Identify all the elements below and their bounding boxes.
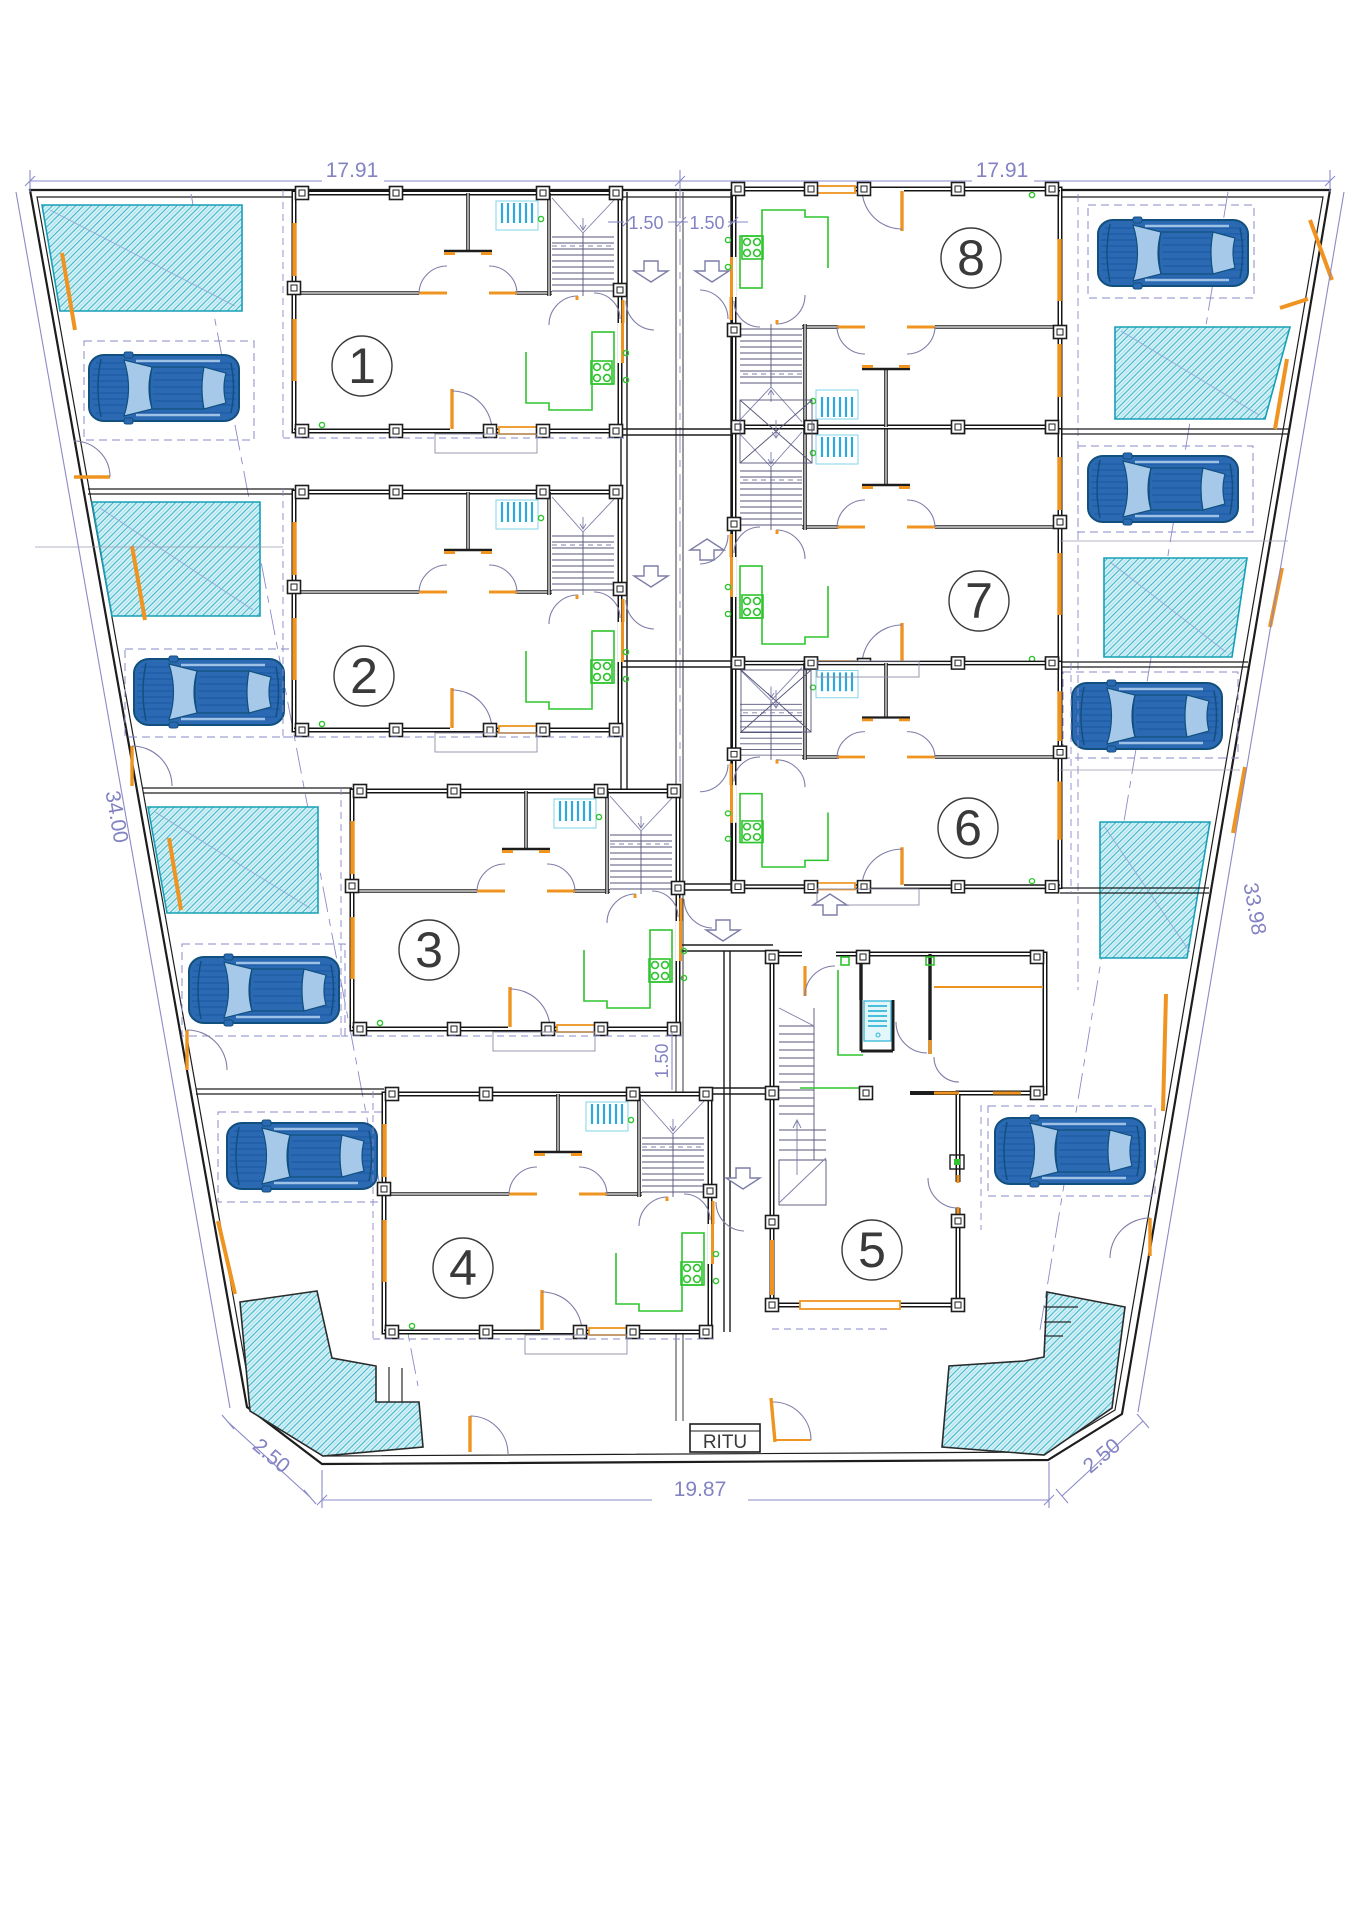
svg-text:17.91: 17.91 <box>326 159 379 182</box>
svg-text:5: 5 <box>858 1222 886 1278</box>
svg-text:RITU: RITU <box>703 1432 747 1453</box>
svg-text:3: 3 <box>415 922 443 978</box>
svg-text:4: 4 <box>449 1240 477 1296</box>
svg-text:1.50: 1.50 <box>652 1043 672 1078</box>
svg-text:7: 7 <box>965 573 993 629</box>
svg-text:1.50: 1.50 <box>628 213 663 233</box>
svg-text:2: 2 <box>350 648 378 704</box>
svg-text:1.50: 1.50 <box>689 213 724 233</box>
svg-text:19.87: 19.87 <box>674 1478 727 1501</box>
svg-text:6: 6 <box>954 800 982 856</box>
svg-text:8: 8 <box>957 230 985 286</box>
svg-text:1: 1 <box>348 338 376 394</box>
svg-text:17.91: 17.91 <box>976 159 1029 182</box>
